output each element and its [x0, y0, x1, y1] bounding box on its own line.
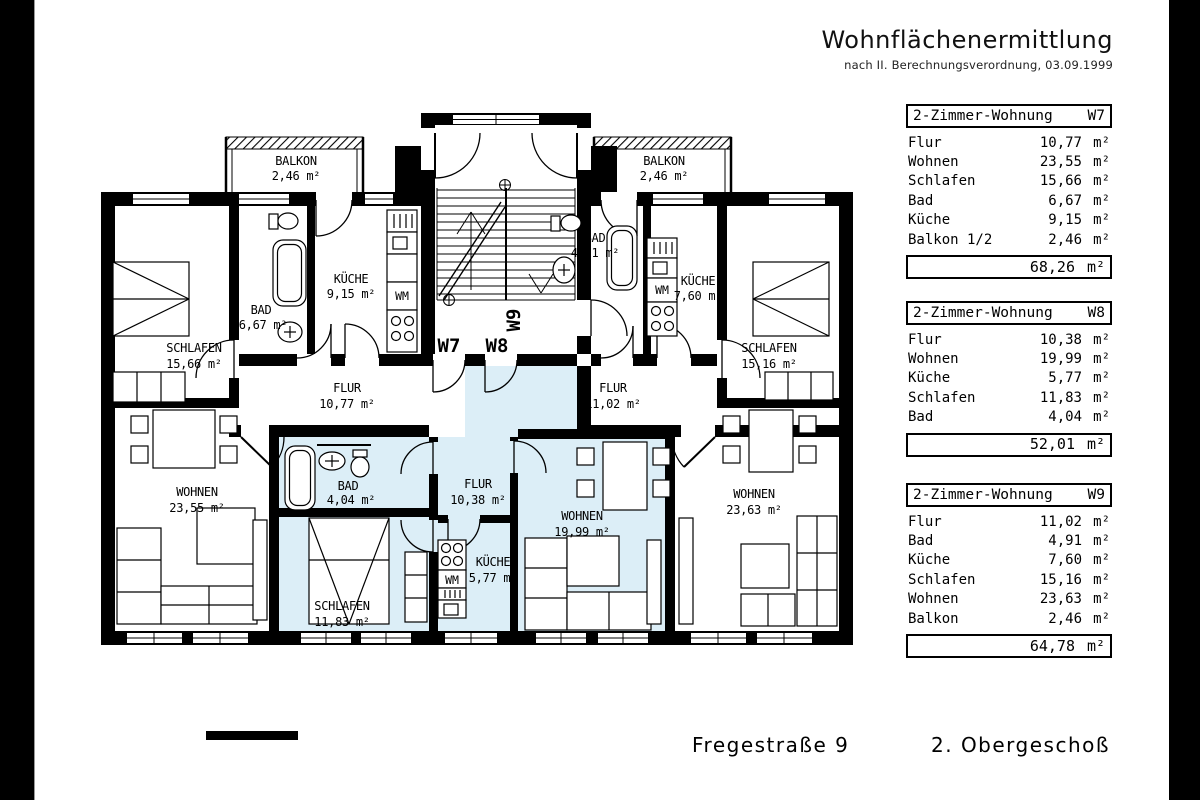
sofa-group — [117, 508, 267, 624]
scale-bar — [206, 731, 298, 740]
area-unit: m² — [1082, 174, 1110, 188]
scanned-page-background: { "header": { "title": "Wohnflächenermit… — [0, 0, 1200, 800]
room-area: 4,04 — [1030, 410, 1082, 424]
table-row: Wohnen23,55m² — [908, 152, 1110, 171]
svg-text:BAD: BAD — [251, 303, 272, 317]
room-area: 11,02 — [1030, 515, 1082, 529]
room-area: 7,60 — [1030, 553, 1082, 567]
area-unit: m² — [1082, 333, 1110, 347]
room-name: Balkon — [908, 612, 1030, 626]
area-unit: m² — [1075, 437, 1105, 452]
washing-machine-label: WM — [655, 283, 669, 297]
area-unit: m² — [1075, 639, 1105, 654]
table-row: Schlafen15,66m² — [908, 172, 1110, 191]
room-area: 15,16 — [1030, 573, 1082, 587]
area-unit: m² — [1082, 410, 1110, 424]
area-unit: m² — [1082, 371, 1110, 385]
table-row: Bad4,91m² — [908, 531, 1110, 550]
table-row: Schlafen15,16m² — [908, 570, 1110, 589]
table-row: Balkon 1/22,46m² — [908, 230, 1110, 249]
room-label-schlafen-w9: SCHLAFEN15,16 m² — [741, 341, 796, 371]
area-unit: m² — [1082, 592, 1110, 606]
table-row: Küche9,15m² — [908, 211, 1110, 230]
room-name: Küche — [908, 213, 1030, 227]
area-unit: m² — [1082, 612, 1110, 626]
room-name: Flur — [908, 515, 1030, 529]
room-name: Schlafen — [908, 573, 1030, 587]
table-total: 64,78 m² — [906, 634, 1112, 658]
svg-text:BALKON: BALKON — [275, 154, 317, 168]
washing-machine-label: WM — [395, 289, 409, 303]
kitchen-counter — [387, 210, 417, 352]
apartment-id: W7 — [1088, 109, 1105, 124]
svg-text:7,60 m²: 7,60 m² — [674, 289, 722, 303]
dining-set — [131, 410, 237, 468]
room-label-kueche-w9: KÜCHE7,60 m² — [674, 272, 722, 303]
svg-text:19,99 m²: 19,99 m² — [554, 525, 609, 539]
apartment-label-w7: W7 — [438, 335, 461, 357]
area-unit: m² — [1082, 233, 1110, 247]
svg-text:SCHLAFEN: SCHLAFEN — [314, 599, 369, 613]
room-label-wohnen-w9: WOHNEN23,63 m² — [726, 487, 781, 517]
area-unit: m² — [1082, 391, 1110, 405]
room-area: 11,83 — [1030, 391, 1082, 405]
svg-text:SCHLAFEN: SCHLAFEN — [166, 341, 221, 355]
room-area: 23,55 — [1030, 155, 1082, 169]
room-label-schlafen-w7: SCHLAFEN15,66 m² — [166, 341, 221, 371]
area-unit: m² — [1082, 213, 1110, 227]
area-table-w9: 2-Zimmer-Wohnung W9 Flur11,02m² Bad4,91m… — [906, 483, 1112, 658]
apartment-label-w9: W9 — [503, 309, 525, 332]
room-area: 10,77 — [1030, 136, 1082, 150]
svg-text:11,02 m²: 11,02 m² — [585, 397, 640, 411]
table-total: 52,01 m² — [906, 433, 1112, 457]
room-area: 15,66 — [1030, 174, 1082, 188]
svg-text:6,67 m²: 6,67 m² — [239, 318, 287, 332]
room-name: Wohnen — [908, 352, 1030, 366]
area-unit: m² — [1082, 194, 1110, 208]
room-label-flur-w9: FLUR11,02 m² — [585, 381, 640, 411]
svg-text:WOHNEN: WOHNEN — [176, 485, 218, 499]
room-area: 6,67 — [1030, 194, 1082, 208]
svg-text:4,04 m²: 4,04 m² — [327, 493, 375, 507]
svg-text:FLUR: FLUR — [333, 381, 362, 395]
room-label-balkon-w9: BALKON2,46 m² — [640, 154, 688, 183]
apartment-id: W8 — [1088, 306, 1105, 321]
room-label-flur-w7: FLUR10,77 m² — [319, 381, 374, 411]
svg-text:15,66 m²: 15,66 m² — [166, 357, 221, 371]
table-header: 2-Zimmer-Wohnung W9 — [906, 483, 1112, 507]
room-area: 4,91 — [1030, 534, 1082, 548]
apartment-label-w8: W8 — [486, 335, 509, 357]
svg-text:5,77 m²: 5,77 m² — [469, 571, 517, 585]
sofa-group — [679, 516, 837, 626]
area-unit: m² — [1082, 515, 1110, 529]
svg-text:KÜCHE: KÜCHE — [681, 272, 716, 288]
svg-text:FLUR: FLUR — [464, 477, 493, 491]
document-page: Wohnflächenermittlung nach II. Berechnun… — [34, 0, 1169, 800]
svg-text:BAD: BAD — [338, 479, 359, 493]
staircase — [437, 180, 575, 306]
svg-text:4,91 m²: 4,91 m² — [571, 246, 619, 260]
table-row: Küche7,60m² — [908, 551, 1110, 570]
table-row: Flur11,02m² — [908, 512, 1110, 531]
svg-text:WOHNEN: WOHNEN — [733, 487, 775, 501]
room-area: 10,38 — [1030, 333, 1082, 347]
table-row: Wohnen23,63m² — [908, 590, 1110, 609]
page-title: Wohnflächenermittlung — [821, 26, 1113, 54]
document-header: Wohnflächenermittlung nach II. Berechnun… — [821, 26, 1113, 72]
table-row: Schlafen11,83m² — [908, 388, 1110, 407]
room-name: Flur — [908, 136, 1030, 150]
area-unit: m² — [1082, 553, 1110, 567]
room-name: Wohnen — [908, 592, 1030, 606]
table-row: Flur10,38m² — [908, 330, 1110, 349]
area-unit: m² — [1082, 136, 1110, 150]
room-name: Küche — [908, 371, 1030, 385]
room-label-kueche-w7: KÜCHE9,15 m² — [327, 270, 375, 301]
room-name: Schlafen — [908, 174, 1030, 188]
svg-text:FLUR: FLUR — [599, 381, 628, 395]
table-header: 2-Zimmer-Wohnung W7 — [906, 104, 1112, 128]
table-row: Küche5,77m² — [908, 369, 1110, 388]
wardrobe — [765, 372, 833, 400]
table-rows: Flur10,38m² Wohnen19,99m² Küche5,77m² Sc… — [906, 330, 1112, 427]
room-label-bad-w7: BAD6,67 m² — [239, 303, 287, 332]
bed — [113, 262, 189, 336]
area-unit: m² — [1082, 573, 1110, 587]
svg-text:2,46 m²: 2,46 m² — [272, 169, 320, 183]
svg-text:BALKON: BALKON — [643, 154, 685, 168]
washing-machine-label: WM — [445, 573, 459, 587]
svg-text:23,63 m²: 23,63 m² — [726, 503, 781, 517]
table-row: Flur10,77m² — [908, 133, 1110, 152]
room-name: Wohnen — [908, 155, 1030, 169]
room-name: Flur — [908, 333, 1030, 347]
room-area: 19,99 — [1030, 352, 1082, 366]
table-row: Bad6,67m² — [908, 191, 1110, 210]
floor-plan-drawing: BALKON2,46 m² BALKON2,46 m² SCHLAFEN15,6… — [96, 105, 861, 655]
area-table-w7: 2-Zimmer-Wohnung W7 Flur10,77m² Wohnen23… — [906, 104, 1112, 279]
svg-text:15,16 m²: 15,16 m² — [741, 357, 796, 371]
room-name: Bad — [908, 410, 1030, 424]
svg-text:2,46 m²: 2,46 m² — [640, 169, 688, 183]
wardrobe — [405, 552, 427, 622]
area-unit: m² — [1082, 534, 1110, 548]
bed — [753, 262, 829, 336]
svg-text:10,38 m²: 10,38 m² — [450, 493, 505, 507]
floor-label: 2. Obergeschoß — [931, 733, 1110, 757]
room-area: 2,46 — [1030, 233, 1082, 247]
room-area: 2,46 — [1030, 612, 1082, 626]
table-header: 2-Zimmer-Wohnung W8 — [906, 301, 1112, 325]
street-label: Fregestraße 9 — [692, 733, 849, 757]
room-area: 23,63 — [1030, 592, 1082, 606]
apartment-type: 2-Zimmer-Wohnung — [913, 109, 1053, 124]
total-area: 64,78 — [913, 639, 1075, 654]
table-rows: Flur11,02m² Bad4,91m² Küche7,60m² Schlaf… — [906, 512, 1112, 628]
dining-set — [723, 410, 816, 472]
area-unit: m² — [1075, 260, 1105, 275]
total-area: 68,26 — [913, 260, 1075, 275]
area-unit: m² — [1082, 155, 1110, 169]
table-row: Wohnen19,99m² — [908, 349, 1110, 368]
apartment-id: W9 — [1088, 488, 1105, 503]
room-label-wohnen-w7: WOHNEN23,55 m² — [169, 485, 224, 515]
svg-text:WOHNEN: WOHNEN — [561, 509, 603, 523]
svg-text:10,77 m²: 10,77 m² — [319, 397, 374, 411]
table-total: 68,26 m² — [906, 255, 1112, 279]
page-subtitle: nach II. Berechnungsverordnung, 03.09.19… — [821, 58, 1113, 72]
area-unit: m² — [1082, 352, 1110, 366]
svg-text:SCHLAFEN: SCHLAFEN — [741, 341, 796, 355]
room-name: Küche — [908, 553, 1030, 567]
svg-text:9,15 m²: 9,15 m² — [327, 287, 375, 301]
room-name: Schlafen — [908, 391, 1030, 405]
svg-text:23,55 m²: 23,55 m² — [169, 501, 224, 515]
room-label-balkon-w7: BALKON2,46 m² — [272, 154, 320, 183]
area-table-w8: 2-Zimmer-Wohnung W8 Flur10,38m² Wohnen19… — [906, 301, 1112, 457]
room-name: Balkon 1/2 — [908, 233, 1030, 247]
total-area: 52,01 — [913, 437, 1075, 452]
room-name: Bad — [908, 534, 1030, 548]
room-area: 9,15 — [1030, 213, 1082, 227]
apartment-type: 2-Zimmer-Wohnung — [913, 306, 1053, 321]
svg-text:11,83 m²: 11,83 m² — [314, 615, 369, 629]
svg-text:KÜCHE: KÜCHE — [334, 270, 369, 286]
apartment-type: 2-Zimmer-Wohnung — [913, 488, 1053, 503]
svg-text:BAD: BAD — [585, 231, 606, 245]
wardrobe — [113, 372, 185, 402]
table-rows: Flur10,77m² Wohnen23,55m² Schlafen15,66m… — [906, 133, 1112, 249]
table-row: Balkon2,46m² — [908, 609, 1110, 628]
room-area: 5,77 — [1030, 371, 1082, 385]
table-row: Bad4,04m² — [908, 408, 1110, 427]
room-name: Bad — [908, 194, 1030, 208]
svg-text:KÜCHE: KÜCHE — [476, 553, 511, 569]
